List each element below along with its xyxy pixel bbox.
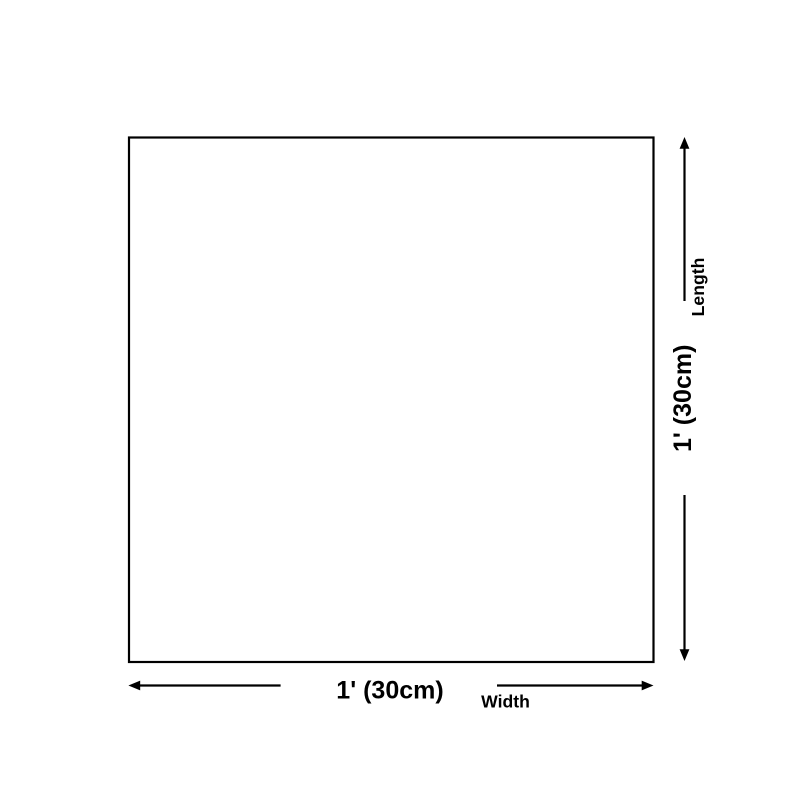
svg-text:Length: Length: [688, 258, 708, 317]
svg-text:Width: Width: [481, 692, 530, 712]
svg-text:1' (30cm): 1' (30cm): [669, 345, 697, 452]
svg-text:1' (30cm): 1' (30cm): [336, 677, 443, 705]
